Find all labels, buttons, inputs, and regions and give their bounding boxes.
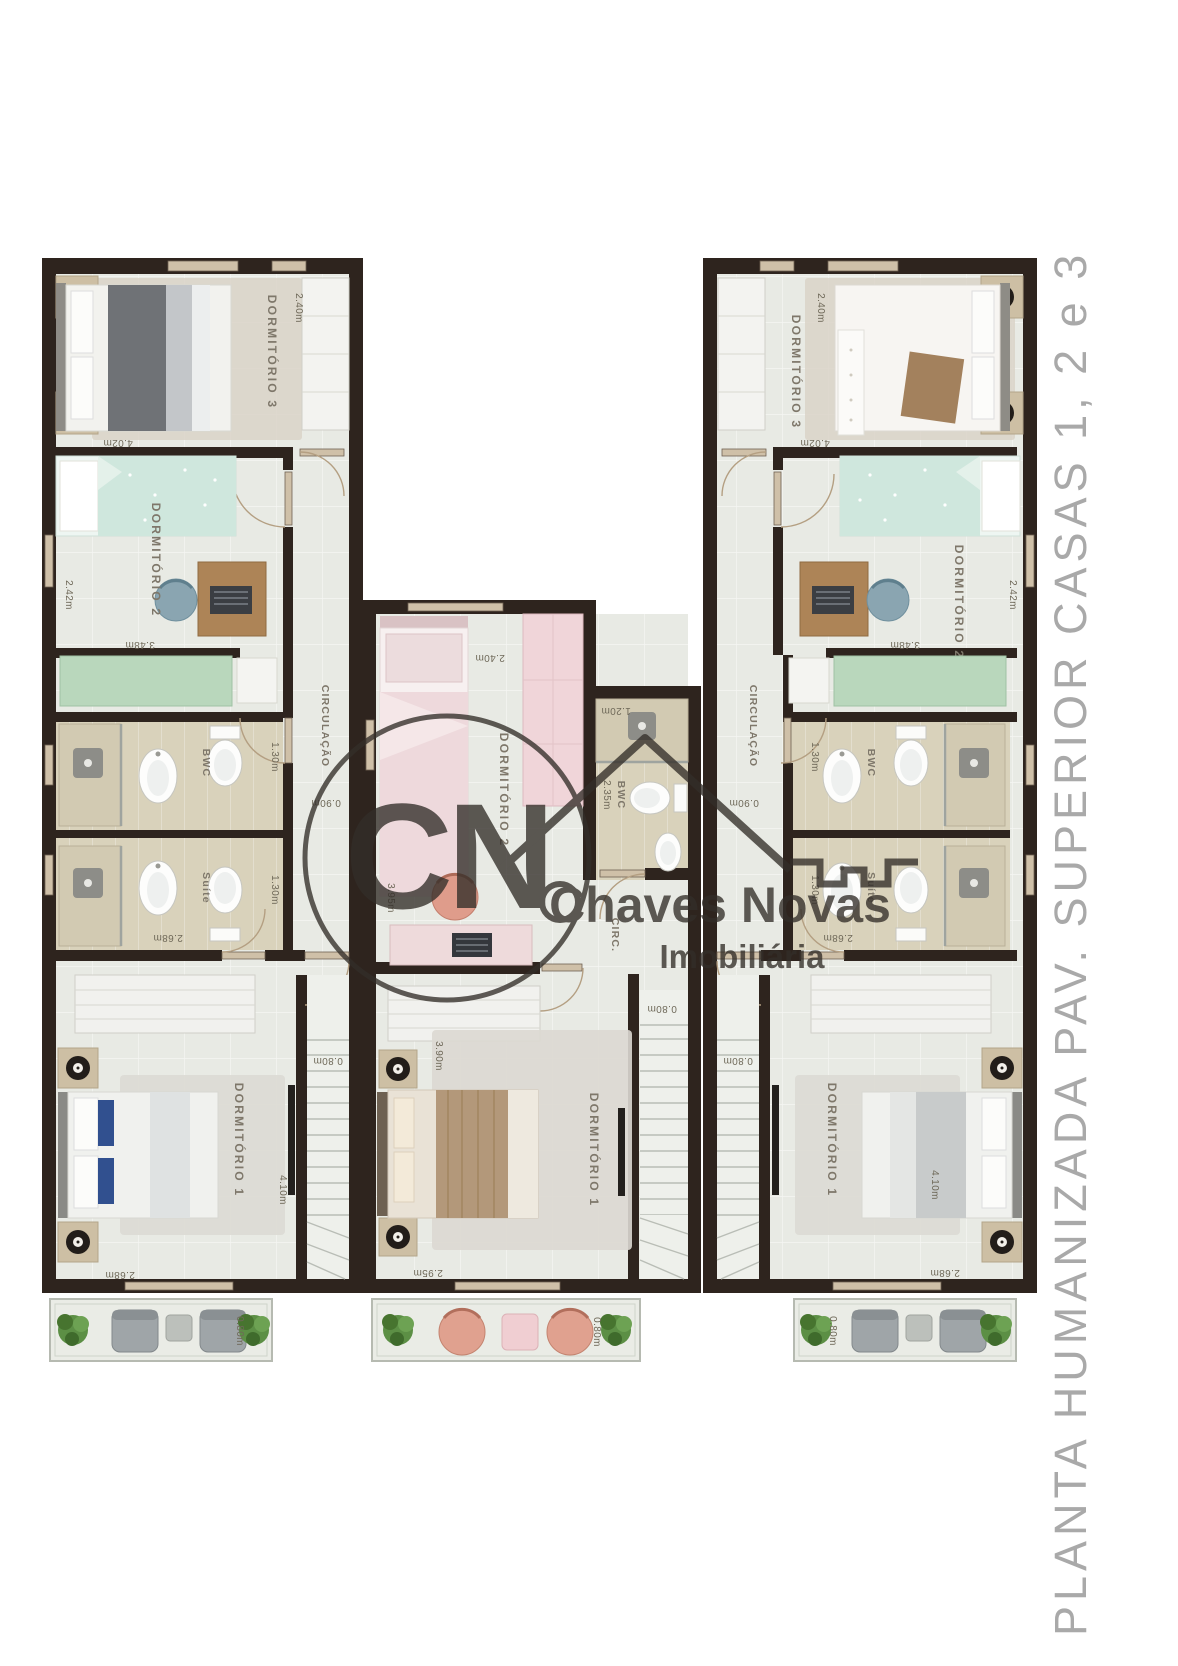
double-bed <box>377 1090 538 1218</box>
unit-casa-3: 0.80m <box>703 258 1037 1361</box>
dim: 2.35m <box>601 780 612 810</box>
wardrobe <box>75 975 255 1033</box>
dim: 1.30m <box>269 742 280 772</box>
room-label: DORMITÓRIO 3 <box>265 295 280 409</box>
toilet <box>208 726 242 786</box>
dim: 3.48m <box>125 639 155 650</box>
single-bed <box>840 456 1020 536</box>
dim: 4.10m <box>929 1170 940 1200</box>
tv-panel <box>288 1085 295 1195</box>
shower <box>945 846 1005 946</box>
nightstand <box>982 1222 1022 1262</box>
dim: 2.40m <box>293 293 304 323</box>
room-label: Suíte <box>200 872 212 904</box>
balcony-door <box>455 1282 560 1290</box>
watermark-tagline: Imobiliária <box>659 938 825 975</box>
room-dormitorio-3: DORMITÓRIO 3 2.40m 4.02m <box>718 276 1023 448</box>
balcony-door <box>125 1282 233 1290</box>
dim: 0.80m <box>723 1055 753 1066</box>
dim-balcony: 0.80m <box>591 1317 602 1347</box>
balcony: 0.80m <box>372 1299 640 1361</box>
balcony-chair <box>112 1310 158 1352</box>
stairs: 0.80m <box>640 990 688 1279</box>
toilet <box>894 726 928 786</box>
desk <box>198 562 266 636</box>
desk-chair <box>867 579 909 621</box>
balcony: 0.80m <box>794 1299 1016 1361</box>
shelf <box>789 658 829 703</box>
room-label: CIRCULAÇÃO <box>319 685 332 768</box>
dim: 2.40m <box>815 293 826 323</box>
dim: 2.40m <box>475 652 505 663</box>
room-label: BWC <box>615 781 627 810</box>
page-title: PLANTA HUMANIZADA PAV. SUPERIOR CASAS 1,… <box>1045 250 1096 1636</box>
sink <box>139 861 177 915</box>
nightstand <box>982 1048 1022 1088</box>
stairs: 0.80m <box>717 975 759 1279</box>
single-bed <box>56 456 236 536</box>
nightstand <box>58 1048 98 1088</box>
room-label: CIRCULAÇÃO <box>747 685 760 768</box>
room-label: DORMITÓRIO 3 <box>789 315 804 429</box>
shower <box>59 724 121 826</box>
dim: 1.30m <box>809 742 820 772</box>
wardrobe <box>811 975 991 1033</box>
room-label: DORMITÓRIO 2 <box>149 503 164 617</box>
dim-balcony: 0.80m <box>234 1316 245 1346</box>
dim: 0.80m <box>647 1003 677 1014</box>
watermark-name: Chaves Novas <box>549 877 891 933</box>
stairs: 0.80m <box>307 975 349 1279</box>
balcony-chair <box>439 1309 485 1355</box>
dim: 4.02m <box>800 437 830 448</box>
sink <box>823 749 861 803</box>
double-bed <box>835 283 1010 435</box>
dim: 2.68m <box>153 932 183 943</box>
desk <box>800 562 868 636</box>
nightstand <box>379 1050 417 1088</box>
room-label: DORMITÓRIO 1 <box>587 1093 602 1207</box>
sink <box>655 833 681 871</box>
dim: 2.42m <box>63 580 74 610</box>
dim: 0.90m <box>729 797 759 808</box>
room-dormitorio-3: DORMITÓRIO 3 2.40m 4.02m <box>56 276 349 448</box>
dim-balcony: 0.80m <box>827 1316 838 1346</box>
balcony-table <box>166 1315 192 1341</box>
double-bed <box>58 1092 218 1218</box>
balcony-door <box>833 1282 941 1290</box>
green-wardrobe <box>834 656 1006 706</box>
room-label: DORMITÓRIO 1 <box>232 1083 247 1197</box>
balcony-table <box>502 1314 538 1350</box>
balcony: 0.80m <box>50 1299 272 1361</box>
green-wardrobe <box>60 656 232 706</box>
toilet <box>208 867 242 941</box>
balcony-chair <box>940 1310 986 1352</box>
room-label: DORMITÓRIO 1 <box>825 1083 840 1197</box>
nightstand <box>58 1222 98 1262</box>
balcony-chair <box>852 1310 898 1352</box>
dim: 2.42m <box>1007 580 1018 610</box>
dim: 4.02m <box>103 437 133 448</box>
toilet <box>630 782 687 814</box>
unit-casa-2: 0.80m <box>363 600 701 1361</box>
dim: 1.20m <box>601 705 631 716</box>
shelf <box>237 658 277 703</box>
room-label: DORMITÓRIO 2 <box>952 545 967 659</box>
tv-panel <box>618 1108 625 1196</box>
dim: 3.48m <box>890 639 920 650</box>
double-bed <box>56 283 231 431</box>
dim: 2.95m <box>413 1267 443 1278</box>
room-label: BWC <box>200 749 212 778</box>
sink <box>139 749 177 803</box>
double-bed <box>862 1092 1022 1218</box>
dim: 2.68m <box>105 1269 135 1280</box>
dim: 0.80m <box>313 1055 343 1066</box>
dim: 1.30m <box>269 875 280 905</box>
shower <box>945 724 1005 826</box>
balcony-chair <box>547 1309 593 1355</box>
floor-plan: 0.80m <box>0 0 1178 1666</box>
dim: 3.90m <box>433 1041 444 1071</box>
dim: 2.68m <box>823 932 853 943</box>
shower <box>59 846 121 946</box>
nightstand <box>379 1218 417 1256</box>
dim: 2.68m <box>930 1267 960 1278</box>
floor-plan-page: 0.80m <box>0 0 1178 1666</box>
dim: 4.10m <box>277 1175 288 1205</box>
room-label: BWC <box>865 749 877 778</box>
balcony-table <box>906 1315 932 1341</box>
toilet <box>894 867 928 941</box>
tv-panel <box>772 1085 779 1195</box>
